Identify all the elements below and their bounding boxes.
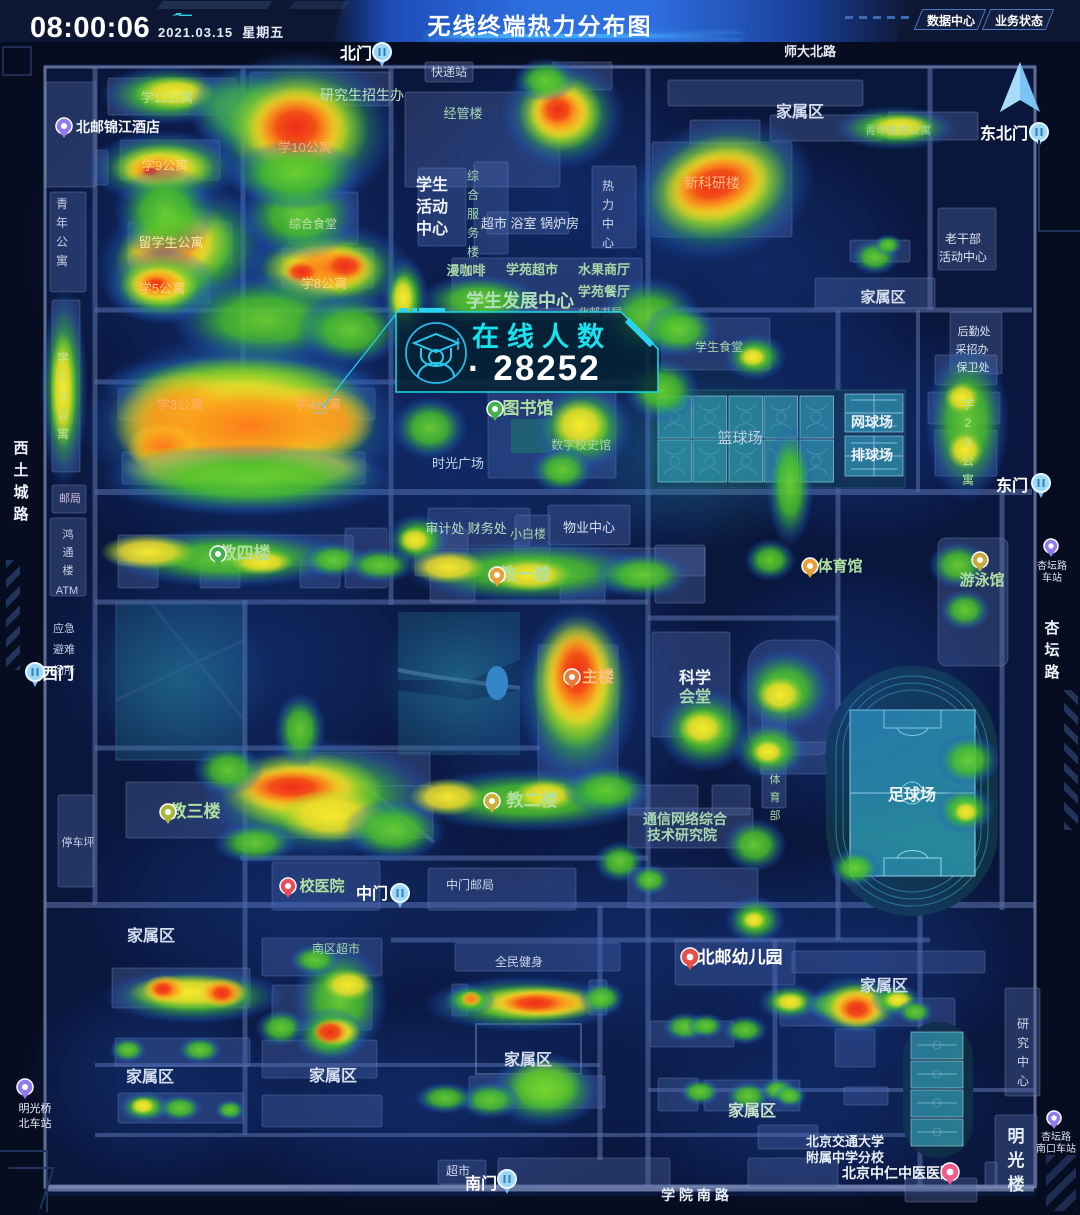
svg-text:杏坛路: 杏坛路 [1043, 619, 1060, 681]
svg-text:中门: 中门 [356, 884, 388, 903]
svg-text:体育馆: 体育馆 [817, 557, 862, 575]
svg-text:南口车站: 南口车站 [1036, 1142, 1076, 1155]
svg-text:留学生公寓: 留学生公寓 [138, 235, 203, 250]
svg-text:北邮幼儿园: 北邮幼儿园 [698, 947, 783, 967]
svg-text:鸿通楼: 鸿通楼 [63, 527, 74, 577]
svg-text:东门: 东门 [996, 476, 1028, 495]
svg-text:活动中心: 活动中心 [939, 249, 987, 264]
svg-text:家属区: 家属区 [309, 1066, 357, 1085]
svg-text:综合服务楼: 综合服务楼 [467, 169, 479, 259]
svg-text:物业中心: 物业中心 [563, 520, 615, 535]
svg-text:足球场: 足球场 [888, 785, 936, 804]
svg-text:学生活动中心: 学生活动中心 [416, 175, 448, 238]
svg-text:车站: 车站 [1042, 571, 1062, 584]
svg-text:篮球场: 篮球场 [717, 429, 762, 447]
svg-text:家属区: 家属区 [728, 1101, 776, 1120]
svg-text:学苑超市: 学苑超市 [506, 262, 558, 277]
svg-text:采招办: 采招办 [956, 342, 989, 356]
svg-text:学8公寓: 学8公寓 [301, 276, 347, 291]
svg-text:会堂: 会堂 [679, 687, 711, 706]
svg-text:家属区: 家属区 [504, 1050, 552, 1069]
svg-text:通信网络综合: 通信网络综合 [643, 811, 728, 827]
svg-text:校医院: 校医院 [299, 877, 344, 895]
svg-text:北车站: 北车站 [19, 1116, 52, 1130]
svg-text:西土城路: 西土城路 [13, 440, 29, 523]
svg-text:青年教师公寓: 青年教师公寓 [865, 123, 931, 137]
svg-text:新科研楼: 新科研楼 [684, 175, 740, 191]
svg-text:学10公寓: 学10公寓 [278, 140, 331, 155]
svg-text:排球场: 排球场 [851, 447, 893, 463]
svg-text:后勤处: 后勤处 [958, 325, 991, 338]
svg-text:保卫处: 保卫处 [957, 360, 990, 374]
svg-text:明光桥: 明光桥 [19, 1101, 52, 1115]
svg-text:杏坛路: 杏坛路 [1037, 559, 1067, 572]
svg-text:超市 浴室 锅炉房: 超市 浴室 锅炉房 [481, 216, 579, 231]
svg-text:东北门: 东北门 [980, 124, 1028, 143]
svg-text:体育部: 体育部 [770, 772, 781, 822]
svg-text:时光广场: 时光广场 [432, 456, 484, 471]
svg-text:ATM: ATM [56, 585, 78, 597]
svg-text:家属区: 家属区 [860, 288, 905, 306]
svg-text:技术研究院: 技术研究院 [647, 827, 717, 843]
svg-text:师大北路: 师大北路 [784, 44, 837, 59]
svg-text:南门: 南门 [465, 1174, 497, 1193]
svg-text:· 28252: · 28252 [468, 349, 601, 388]
svg-text:应急: 应急 [53, 621, 75, 635]
svg-text:家属区: 家属区 [860, 976, 908, 995]
svg-text:图书馆: 图书馆 [503, 398, 554, 418]
svg-text:研究生招生办: 研究生招生办 [320, 87, 404, 103]
svg-text:教二楼: 教二楼 [506, 790, 558, 810]
svg-text:家属区: 家属区 [776, 102, 824, 121]
svg-text:学3公寓: 学3公寓 [157, 397, 203, 412]
svg-text:明光楼: 明光楼 [1007, 1127, 1025, 1194]
svg-text:停车坪: 停车坪 [62, 835, 95, 849]
svg-text:老干部: 老干部 [945, 231, 981, 246]
svg-text:在线人数: 在线人数 [472, 322, 612, 352]
svg-text:漫咖啡: 漫咖啡 [446, 263, 485, 278]
svg-text:杏坛路: 杏坛路 [1041, 1130, 1071, 1143]
svg-text:主楼: 主楼 [582, 667, 614, 686]
svg-text:附属中学分校: 附属中学分校 [806, 1150, 885, 1165]
svg-text:学5公寓: 学5公寓 [139, 281, 185, 296]
svg-text:北邮锦江酒店: 北邮锦江酒店 [76, 119, 160, 135]
svg-text:网球场: 网球场 [851, 414, 893, 430]
svg-text:学生发展中心: 学生发展中心 [466, 290, 574, 311]
svg-text:北京中仁中医医院: 北京中仁中医医院 [842, 1165, 954, 1181]
svg-text:避难: 避难 [53, 642, 75, 656]
svg-text:北京交通大学: 北京交通大学 [806, 1134, 884, 1149]
svg-text:中门邮局: 中门邮局 [446, 877, 494, 892]
svg-text:游泳馆: 游泳馆 [959, 571, 1004, 589]
svg-text:小白楼: 小白楼 [510, 526, 546, 541]
svg-text:邮局: 邮局 [59, 492, 81, 505]
svg-text:全民健身: 全民健身 [495, 954, 543, 969]
svg-text:北门: 北门 [340, 44, 372, 63]
svg-text:数字校史馆: 数字校史馆 [551, 437, 611, 452]
svg-text:学苑餐厅: 学苑餐厅 [578, 284, 630, 299]
svg-text:学9公寓: 学9公寓 [142, 158, 188, 173]
svg-text:学生食堂: 学生食堂 [695, 339, 743, 354]
svg-text:家属区: 家属区 [126, 1067, 174, 1086]
svg-text:学 院 南 路: 学 院 南 路 [661, 1187, 730, 1203]
svg-text:南区超市: 南区超市 [312, 941, 360, 956]
svg-text:西门: 西门 [42, 664, 74, 683]
svg-text:学11公寓: 学11公寓 [141, 90, 194, 105]
svg-text:水果商厅: 水果商厅 [578, 262, 630, 277]
svg-text:科学: 科学 [679, 668, 711, 687]
svg-text:审计处 财务处: 审计处 财务处 [425, 521, 507, 536]
svg-text:经管楼: 经管楼 [443, 106, 482, 121]
svg-text:快递站: 快递站 [431, 65, 467, 79]
svg-text:家属区: 家属区 [127, 926, 175, 945]
svg-text:综合食堂: 综合食堂 [289, 216, 337, 231]
svg-text:教一楼: 教一楼 [499, 564, 551, 584]
